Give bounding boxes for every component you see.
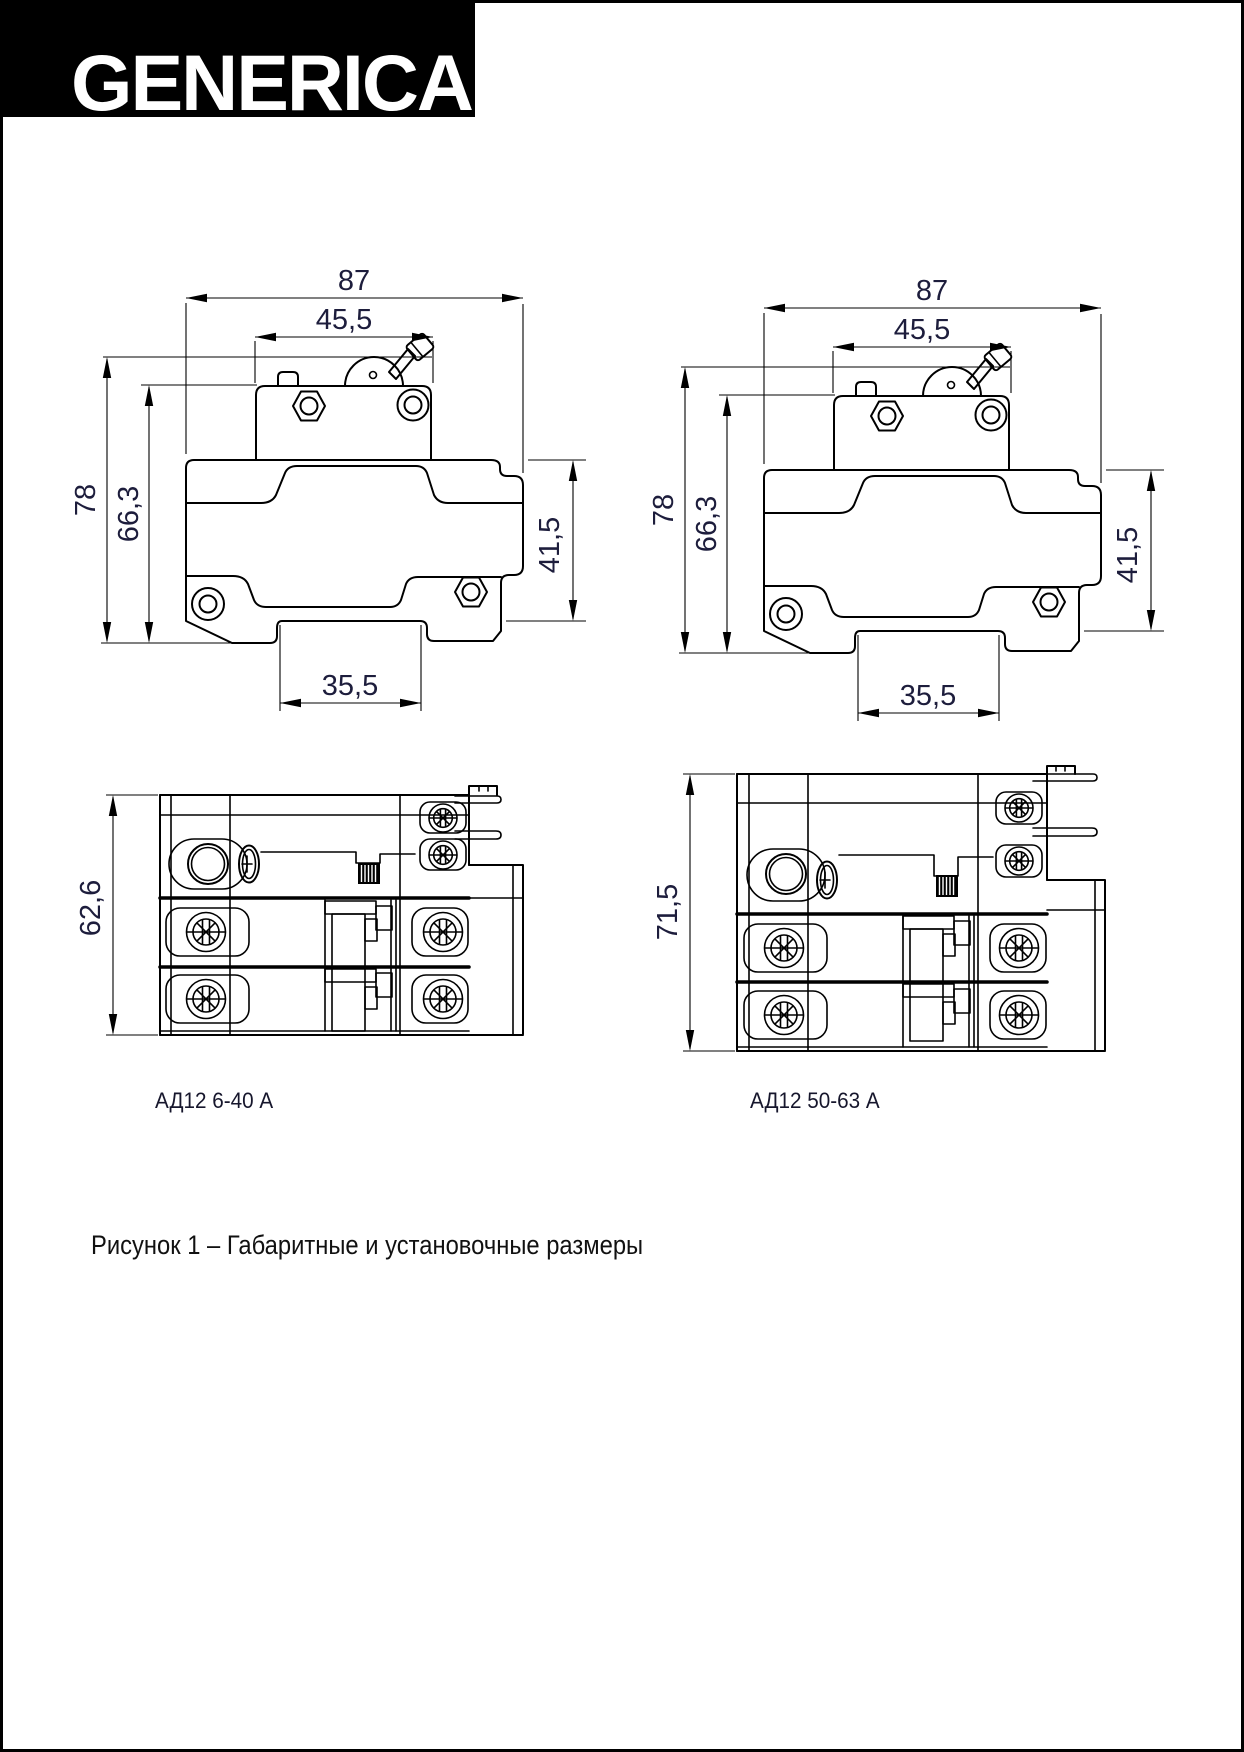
side-view-ad12-50-63: 87 45,5 78 66,3 41,5 35,5	[648, 275, 1164, 721]
figure-caption: Рисунок 1 – Габаритные и установочные ра…	[91, 1230, 643, 1261]
dim-din-slot: 35,5	[322, 670, 378, 702]
dim-din-slot: 35,5	[900, 680, 956, 712]
side-view-ad12-6-40: 87 45,5 78 66,3 41,5 35,5	[70, 265, 586, 711]
dim-overall-width: 87	[916, 275, 948, 307]
document-page: GENERICA	[0, 0, 1244, 1752]
dim-overall-width: 87	[338, 265, 370, 297]
model-label-left: АД12 6-40 А	[155, 1088, 273, 1114]
bottom-view-ad12-6-40: 62,6	[75, 786, 523, 1035]
dim-din-height: 41,5	[534, 517, 566, 573]
dim-din-height: 41,5	[1112, 527, 1144, 583]
dim-overall-height: 78	[70, 484, 102, 516]
dim-top-width: 45,5	[316, 304, 372, 336]
technical-drawing: 87 45,5 78 66,3 41,5 35,5 87 45,5 78 66,…	[3, 3, 1244, 1752]
dim-depth: 62,6	[75, 880, 107, 936]
dim-depth: 71,5	[652, 884, 684, 940]
model-label-right: АД12 50-63 А	[750, 1088, 880, 1114]
dim-body-height: 66,3	[113, 486, 145, 542]
dim-top-width: 45,5	[894, 314, 950, 346]
bottom-view-ad12-50-63: 71,5	[652, 766, 1105, 1051]
dim-overall-height: 78	[648, 494, 680, 526]
dim-body-height: 66,3	[691, 496, 723, 552]
